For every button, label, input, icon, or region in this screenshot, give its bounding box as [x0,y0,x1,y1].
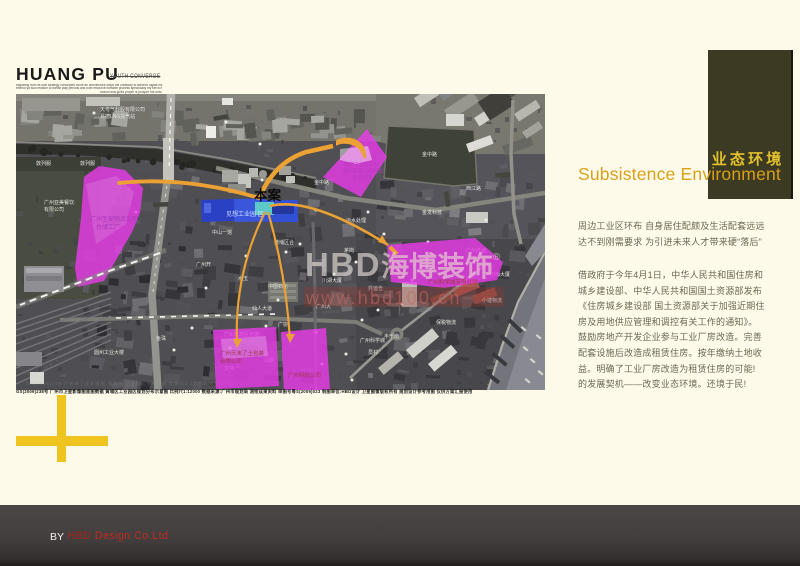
svg-text:西江路: 西江路 [466,185,481,192]
svg-text:南岗工业区项目: 南岗工业区项目 [344,161,379,168]
svg-text:仓储工厂: 仓储工厂 [96,223,120,231]
svg-text:广州科技公司: 广州科技公司 [288,371,321,379]
svg-text:易德LNG充气站: 易德LNG充气站 [100,113,135,120]
svg-text:保税物流: 保税物流 [436,319,456,326]
svg-text:金中路: 金中路 [314,179,329,186]
svg-text:广州亚美餐饮: 广州亚美餐饮 [44,199,74,206]
svg-text:GS(2009)238 广州市卫星影像图 黄埔区 工业园区分: GS(2009)238 广州市卫星影像图 黄埔区 工业园区分布示意 比例尺1:1… [26,380,246,387]
svg-text:敦列服: 敦列服 [80,160,95,167]
svg-text:广州天末了土包装: 广州天末了土包装 [220,349,265,357]
svg-text:金发科技: 金发科技 [422,209,442,216]
svg-text:中山一馆: 中山一馆 [212,229,232,236]
svg-text:改造范围: 改造范围 [352,174,372,181]
svg-text:有限公司: 有限公司 [220,357,242,365]
svg-text:建材有限公司规划: 建材有限公司规划 [343,168,383,175]
svg-text:广州圣安物流公司: 广州圣安物流公司 [90,215,138,223]
svg-text:见想工业园 区: 见想工业园 区 [226,210,264,218]
svg-text:鱼珠: 鱼珠 [156,335,166,342]
svg-text:丰乐南: 丰乐南 [384,333,399,340]
svg-text:广州科学城: 广州科学城 [360,337,385,344]
svg-text:有限公司: 有限公司 [44,206,64,213]
svg-text:金中路: 金中路 [422,151,437,158]
svg-text:仙人大道: 仙人大道 [252,305,272,312]
svg-text:圆州工业大楼: 圆州工业大楼 [94,349,124,356]
svg-text:天粤气科股有限公司: 天粤气科股有限公司 [100,106,145,113]
svg-text:广州开: 广州开 [196,261,211,268]
svg-text:广协: 广协 [278,321,288,328]
svg-text:员村: 员村 [368,349,378,356]
svg-text:敦列服: 敦列服 [36,160,51,167]
svg-text:本案: 本案 [254,187,281,203]
